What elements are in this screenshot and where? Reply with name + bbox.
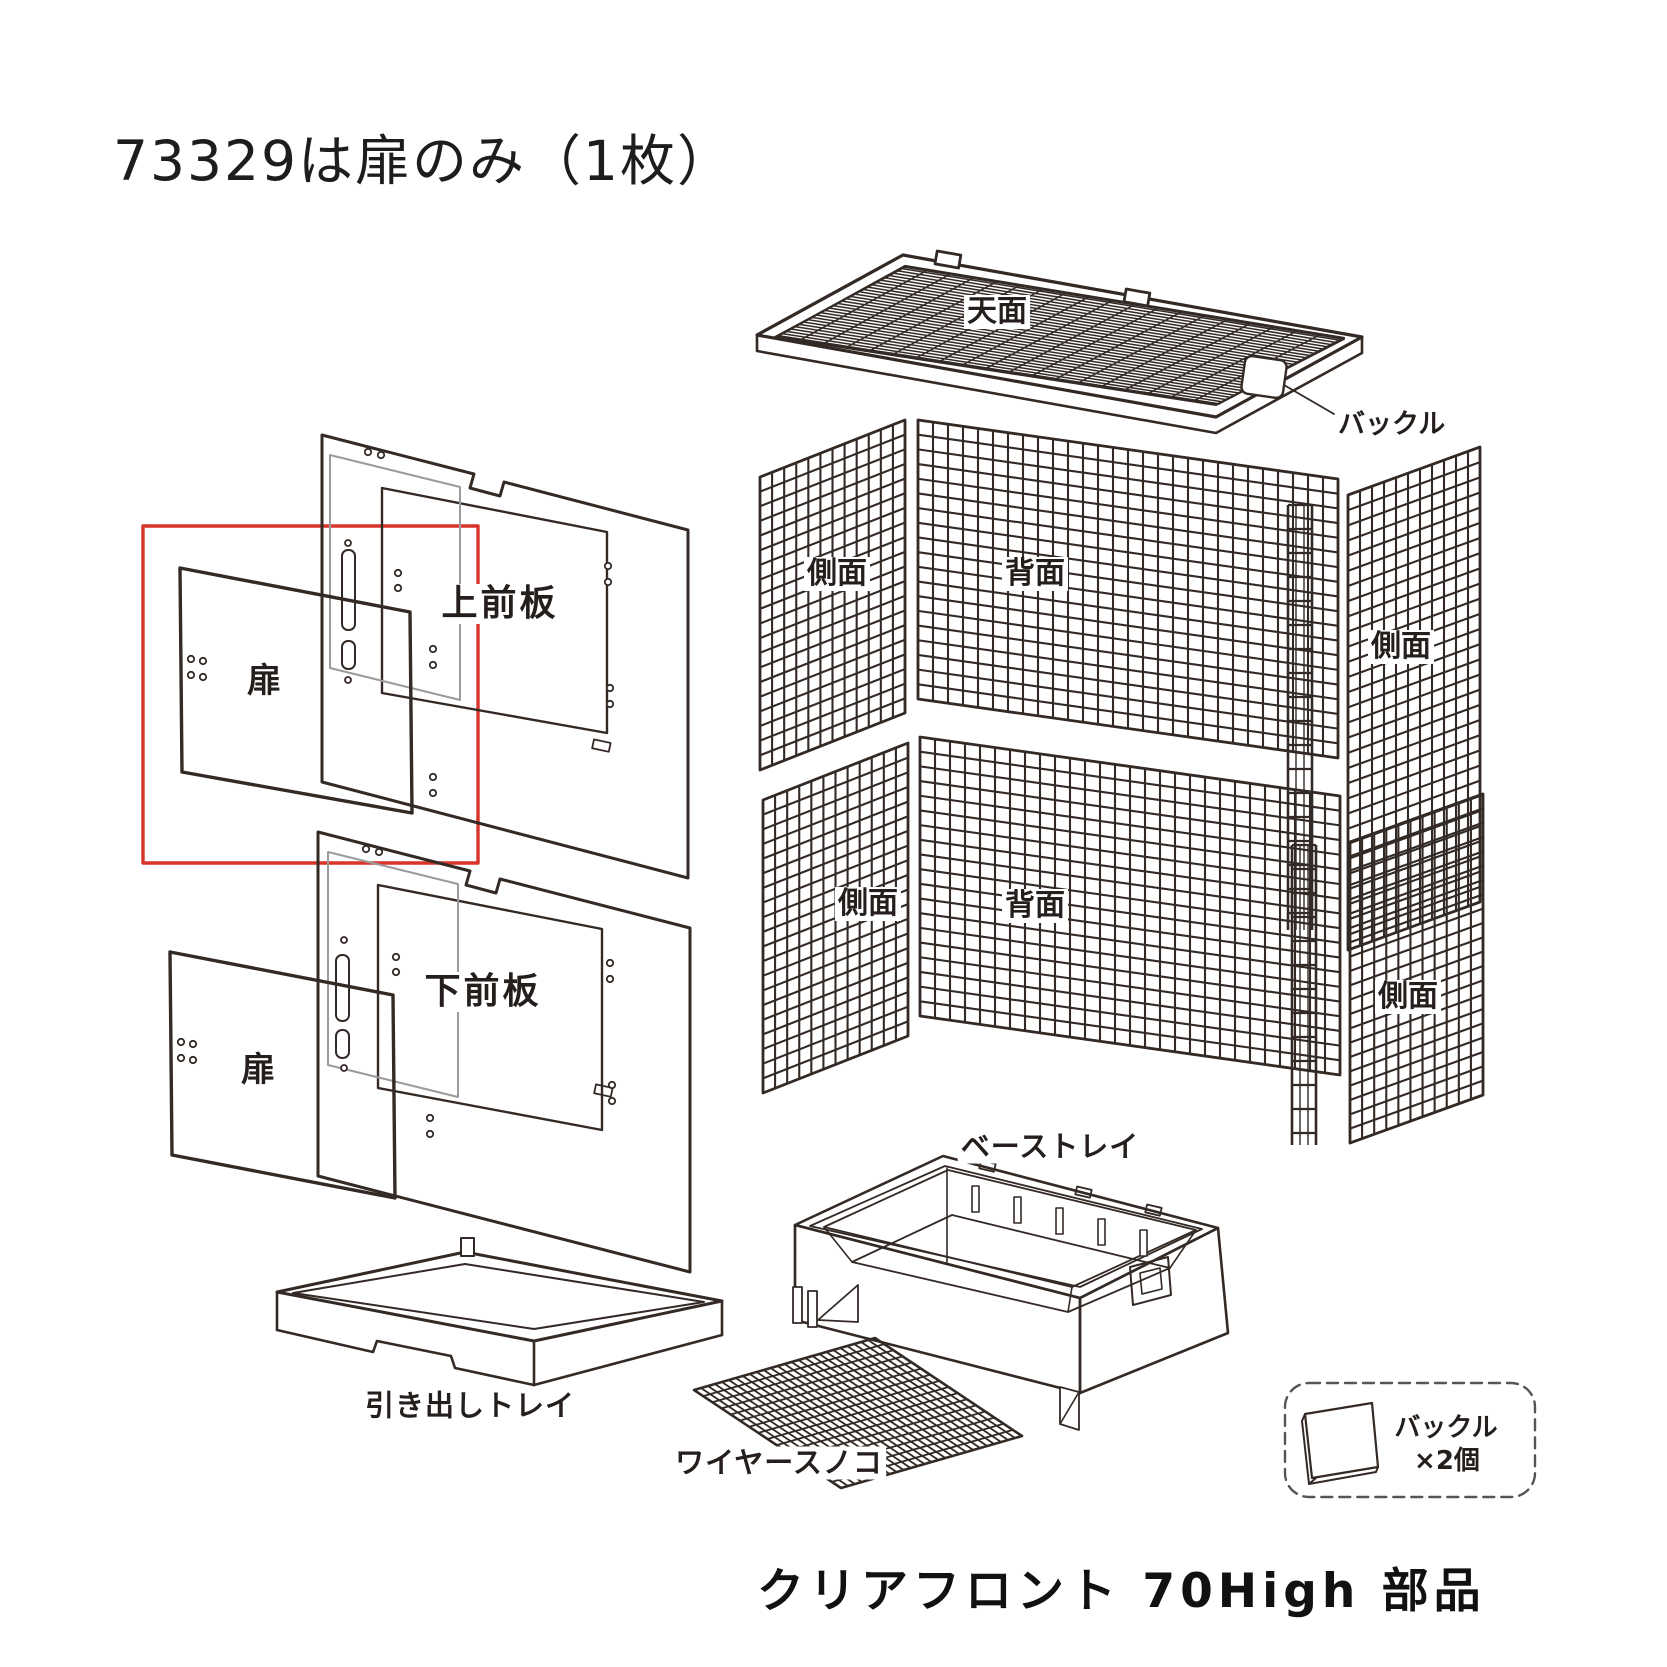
label-buckle-legend-name: バックル (1391, 1413, 1500, 1443)
label-upper-side-left: 側面 (804, 557, 870, 591)
label-upper-side-right: 側面 (1368, 630, 1434, 664)
label-top-panel: 天面 (964, 295, 1030, 329)
label-base-tray: ベーストレイ (958, 1131, 1143, 1164)
door-highlight-red-box (143, 526, 478, 863)
base-tray-drawing (793, 1156, 1228, 1430)
label-drawer-tray: 引き出しトレイ (362, 1390, 578, 1423)
lower-front-plate-drawing (318, 832, 690, 1272)
label-wire-grate: ワイヤースノコ (672, 1447, 886, 1480)
label-lower-back: 背面 (1002, 889, 1068, 923)
drawer-tray-drawing (277, 1238, 722, 1385)
upper-front-plate-drawing (322, 435, 688, 878)
label-lower-side-left: 側面 (835, 887, 901, 921)
label-upper-front-plate: 上前板 (438, 584, 561, 624)
buckle-leader-line (1284, 385, 1334, 414)
label-buckle-callout: バックル (1338, 402, 1445, 441)
label-upper-door: 扉 (244, 662, 284, 700)
product-title: クリアフロント 70High 部品 (757, 1552, 1486, 1621)
label-lower-door: 扉 (238, 1051, 278, 1089)
upper-acrylic-sheet-drawing (330, 455, 460, 796)
upper-door-drawing (180, 568, 412, 813)
label-buckle-legend-qty: ×2個 (1411, 1446, 1483, 1476)
label-lower-side-right: 側面 (1375, 980, 1441, 1014)
note-title: 73329は扉のみ（1枚） (113, 116, 734, 196)
label-upper-back: 背面 (1002, 557, 1068, 591)
parts-diagram-page: 73329は扉のみ（1枚） 天面 バックル 側面 背面 側面 側面 背面 側面 … (0, 0, 1667, 1667)
label-lower-front-plate: 下前板 (421, 972, 544, 1012)
